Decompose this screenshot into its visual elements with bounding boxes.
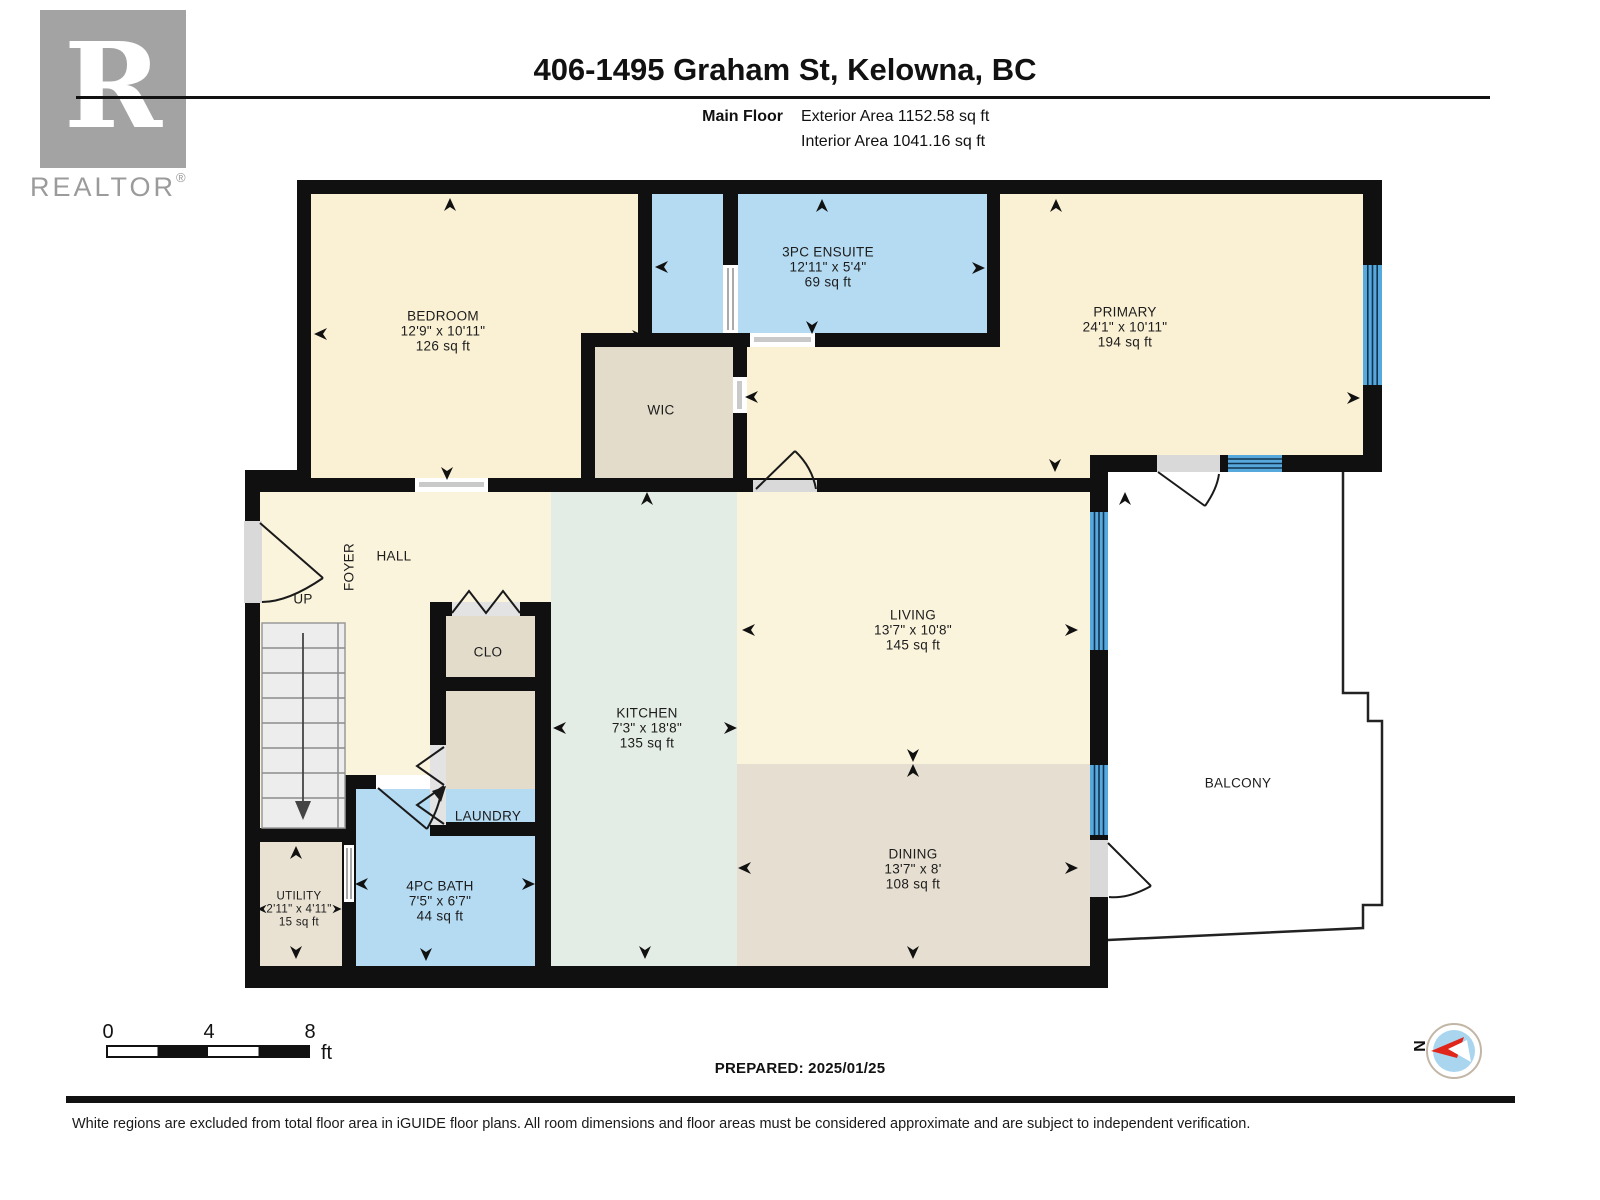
floor-plan-drawing: 0 4 8 ft N: [0, 0, 1600, 1200]
room-name: LIVING: [874, 608, 952, 623]
balcony-outline: [1108, 472, 1382, 940]
room-name: KITCHEN: [612, 706, 682, 721]
room-area: 145 sq ft: [874, 638, 952, 653]
stairs-up-label: UP: [293, 592, 312, 607]
scale-bar: 0 4 8 ft: [102, 1021, 332, 1064]
room-name: UTILITY: [266, 891, 331, 904]
room-dims: 12'11" x 5'4": [782, 260, 874, 275]
room-area: 135 sq ft: [612, 736, 682, 751]
room-name: BEDROOM: [401, 309, 486, 324]
room-area: 69 sq ft: [782, 275, 874, 290]
room-label-bedroom: BEDROOM 12'9" x 10'11" 126 sq ft: [401, 309, 486, 354]
room-dims: 7'3" x 18'8": [612, 721, 682, 736]
stairs: [262, 623, 345, 828]
room-label-clo: CLO: [474, 645, 503, 660]
room-label-utility: UTILITY 2'11" x 4'11" 15 sq ft: [266, 891, 331, 930]
room-label-laundry: LAUNDRY: [455, 809, 521, 824]
realtor-wordmark: REALTOR®: [30, 170, 186, 203]
room-label-hall: HALL: [377, 549, 412, 564]
realtor-brand-text: REALTOR: [30, 172, 176, 202]
compass-icon: N: [1410, 1024, 1481, 1078]
room-label-bath: 4PC BATH 7'5" x 6'7" 44 sq ft: [406, 879, 473, 924]
room-area: 108 sq ft: [884, 877, 941, 892]
room-area: 126 sq ft: [401, 339, 486, 354]
room-name: DINING: [884, 847, 941, 862]
room-area: 44 sq ft: [406, 909, 473, 924]
room-dims: 7'5" x 6'7": [406, 894, 473, 909]
room-dims: 24'1" x 10'11": [1083, 320, 1168, 335]
room-name: PRIMARY: [1083, 305, 1168, 320]
room-dims: 2'11" x 4'11": [266, 904, 331, 917]
header-rule: [76, 96, 1490, 99]
scale-tick-4: 4: [203, 1021, 214, 1043]
footer-rule: [66, 1096, 1515, 1103]
room-label-ensuite: 3PC ENSUITE 12'11" x 5'4" 69 sq ft: [782, 245, 874, 290]
prepared-date: PREPARED: 2025/01/25: [715, 1060, 885, 1077]
compass-north-label: N: [1410, 1040, 1427, 1052]
scale-tick-0: 0: [102, 1021, 113, 1043]
room-name: FOYER: [342, 543, 357, 591]
room-area: 15 sq ft: [266, 917, 331, 930]
room-label-primary: PRIMARY 24'1" x 10'11" 194 sq ft: [1083, 305, 1168, 350]
room-label-wic: WIC: [647, 403, 674, 418]
room-name: 3PC ENSUITE: [782, 245, 874, 260]
floor-plan-page: R REALTOR® 406-1495 Graham St, Kelowna, …: [0, 0, 1600, 1200]
room-label-dining: DINING 13'7" x 8' 108 sq ft: [884, 847, 941, 892]
room-label-foyer: FOYER: [342, 543, 357, 591]
room-dims: 13'7" x 10'8": [874, 623, 952, 638]
room-label-kitchen: KITCHEN 7'3" x 18'8" 135 sq ft: [612, 706, 682, 751]
room-area: 194 sq ft: [1083, 335, 1168, 350]
room-name: LAUNDRY: [455, 809, 521, 824]
room-name: WIC: [647, 403, 674, 418]
room-label-balcony: BALCONY: [1205, 776, 1272, 791]
room-name: HALL: [377, 549, 412, 564]
room-name: BALCONY: [1205, 776, 1272, 791]
registered-symbol: ®: [176, 170, 186, 185]
room-name: 4PC BATH: [406, 879, 473, 894]
realtor-logo-letter: R: [64, 27, 162, 145]
room-label-living: LIVING 13'7" x 10'8" 145 sq ft: [874, 608, 952, 653]
footer-disclaimer: White regions are excluded from total fl…: [72, 1116, 1532, 1132]
room-name: UP: [293, 592, 312, 607]
room-dims: 12'9" x 10'11": [401, 324, 486, 339]
realtor-logo: R: [40, 10, 186, 168]
scale-tick-8: 8: [304, 1021, 315, 1043]
room-dims: 13'7" x 8': [884, 862, 941, 877]
scale-unit: ft: [321, 1042, 333, 1064]
room-name: CLO: [474, 645, 503, 660]
